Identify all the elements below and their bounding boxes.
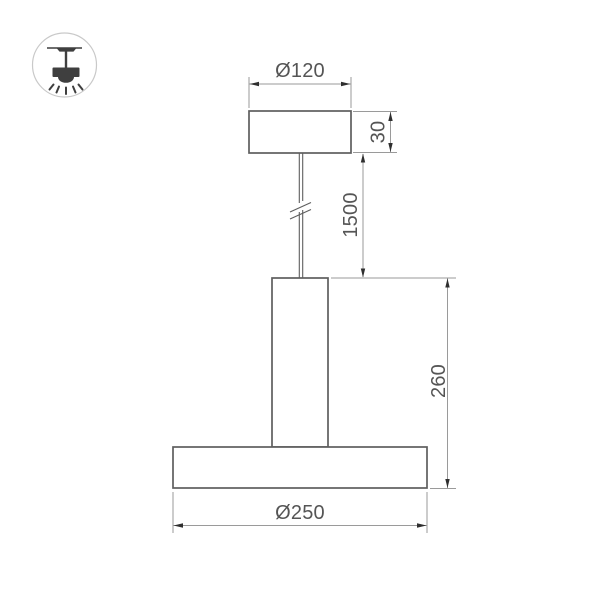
label-canopy-diameter: Ø120: [275, 60, 325, 82]
arrow-up: [445, 279, 449, 288]
label-suspension-length: 1500: [340, 192, 362, 237]
arrow-down: [361, 269, 365, 278]
canopy-rect: [249, 111, 351, 153]
arrow-up: [388, 112, 392, 121]
lamp-outline: [173, 111, 427, 488]
icon-lamp-body: [53, 68, 80, 78]
arrow-down: [445, 479, 449, 488]
label-canopy-height: 30: [368, 121, 390, 144]
arrow-down: [388, 143, 392, 152]
drawing-canvas: Ø120 30 1500 260 Ø250: [0, 0, 600, 600]
suspension-cable: [290, 153, 311, 278]
pendant-lamp-dimension-drawing: Ø120 30 1500 260 Ø250: [0, 0, 600, 600]
arrow-left: [250, 82, 260, 86]
body-cylinder-rect: [272, 278, 328, 447]
label-shade-diameter: Ø250: [275, 502, 325, 524]
label-body-height: 260: [428, 364, 450, 398]
pendant-light-icon: [33, 33, 97, 97]
icon-circle-border: [33, 33, 97, 97]
arrow-left: [174, 523, 184, 527]
shade-disc-rect: [173, 447, 427, 488]
arrow-right: [341, 82, 351, 86]
arrow-up: [361, 154, 365, 163]
arrow-right: [417, 523, 427, 527]
